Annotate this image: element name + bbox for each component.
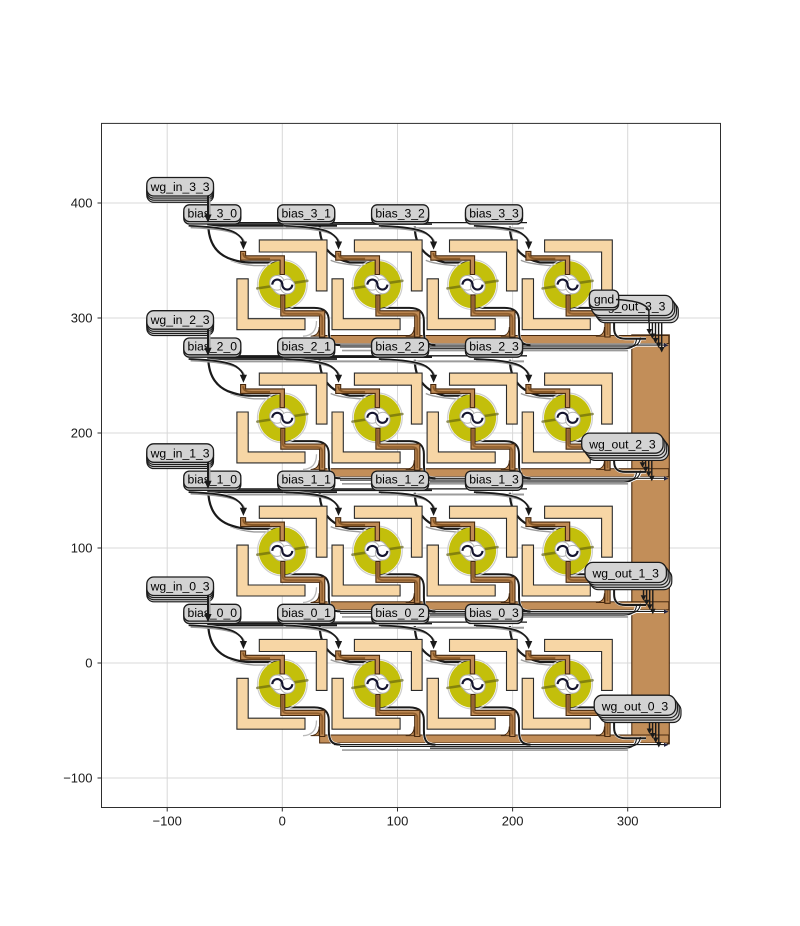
svg-text:100: 100: [71, 541, 93, 556]
svg-text:bias_0_0: bias_0_0: [188, 606, 238, 620]
svg-text:bias_2_2: bias_2_2: [375, 340, 425, 354]
svg-text:bias_1_3: bias_1_3: [469, 473, 519, 487]
svg-text:100: 100: [387, 814, 409, 829]
svg-text:bias_0_1: bias_0_1: [281, 606, 331, 620]
svg-text:0: 0: [85, 656, 92, 671]
svg-text:bias_3_1: bias_3_1: [281, 206, 331, 220]
svg-text:bias_3_3: bias_3_3: [469, 206, 519, 220]
svg-text:0: 0: [279, 814, 286, 829]
svg-text:bias_2_1: bias_2_1: [281, 340, 331, 354]
svg-text:wg_in_1_3: wg_in_1_3: [150, 446, 210, 460]
svg-text:bias_1_1: bias_1_1: [281, 473, 331, 487]
svg-text:bias_0_3: bias_0_3: [469, 606, 519, 620]
svg-text:bias_1_2: bias_1_2: [375, 473, 425, 487]
svg-text:wg_in_0_3: wg_in_0_3: [150, 580, 210, 594]
svg-text:300: 300: [617, 814, 639, 829]
svg-text:wg_out_1_3: wg_out_1_3: [591, 567, 659, 581]
svg-text:wg_out_2_3: wg_out_2_3: [588, 437, 656, 451]
svg-text:wg_in_3_3: wg_in_3_3: [150, 180, 210, 194]
svg-text:gnd: gnd: [594, 292, 614, 306]
svg-text:400: 400: [71, 196, 93, 211]
svg-text:−100: −100: [63, 771, 92, 786]
svg-text:bias_3_0: bias_3_0: [188, 206, 238, 220]
svg-text:300: 300: [71, 311, 93, 326]
svg-text:bias_0_2: bias_0_2: [375, 606, 425, 620]
svg-text:bias_1_0: bias_1_0: [188, 473, 238, 487]
svg-text:−100: −100: [153, 814, 182, 829]
svg-text:wg_out_0_3: wg_out_0_3: [601, 699, 669, 713]
svg-text:bias_3_2: bias_3_2: [375, 206, 425, 220]
svg-text:200: 200: [502, 814, 524, 829]
svg-text:200: 200: [71, 426, 93, 441]
svg-text:bias_2_3: bias_2_3: [469, 340, 519, 354]
svg-text:bias_2_0: bias_2_0: [188, 340, 238, 354]
svg-text:wg_in_2_3: wg_in_2_3: [150, 313, 210, 327]
